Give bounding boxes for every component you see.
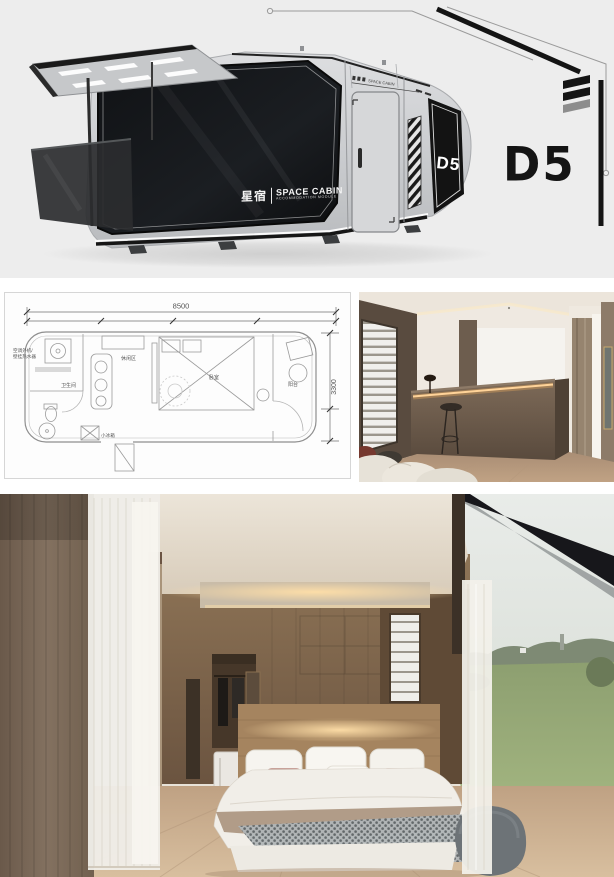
dimension-depth-label: 3300 [331,379,338,395]
d5-logo: D5 [503,137,576,192]
brand-divider [271,187,272,203]
label-bedroom: 卧室 [209,374,219,381]
right-wall-mirror [601,302,614,482]
label-ac-line1: 空调外机/ [13,347,33,354]
control-panel [186,679,200,779]
dimension-width-label: 8500 [173,302,190,311]
side-model-badge: D5 [436,153,462,174]
label-bathroom: 卫生间 [61,382,76,389]
interior-photo-bedroom [0,494,614,877]
plan-fixtures [30,334,313,471]
floor-plan-panel: 8500 3300 [4,292,351,479]
label-balcony: 阳台 [288,381,298,388]
back-partition [477,328,565,388]
label-fridge: 小冰箱 [101,432,115,439]
brand-sub: ACCOMMODATION MODULE [276,196,343,202]
headboard-light [242,718,438,742]
product-showcase: D5 SPACE CABIN 星宿 [0,0,614,877]
balcony-glass [31,139,133,231]
hanging-clothes [218,678,228,726]
brand-lockup: 星宿 SPACE CABIN ACCOMMODATION MODULE [241,184,343,205]
left-curtain-sheer [88,494,160,870]
bed-platform [230,842,458,872]
door-handle [358,148,362,168]
label-ac-line2: 壁挂热水器 [13,353,36,360]
blinds-window [390,614,420,702]
hazard-stripe [408,116,421,209]
label-lounge: 休闲区 [121,355,136,362]
floor-plan: 8500 3300 [5,293,350,478]
bars-icon [563,75,590,113]
interior-photo-hallway [359,292,614,482]
left-curtain-brown [0,494,94,877]
brand-cn: 星宿 [241,187,267,205]
blinds-window [362,320,397,452]
hero-render-section: D5 SPACE CABIN 星宿 [0,0,614,278]
right-sheer-curtain [462,580,492,874]
